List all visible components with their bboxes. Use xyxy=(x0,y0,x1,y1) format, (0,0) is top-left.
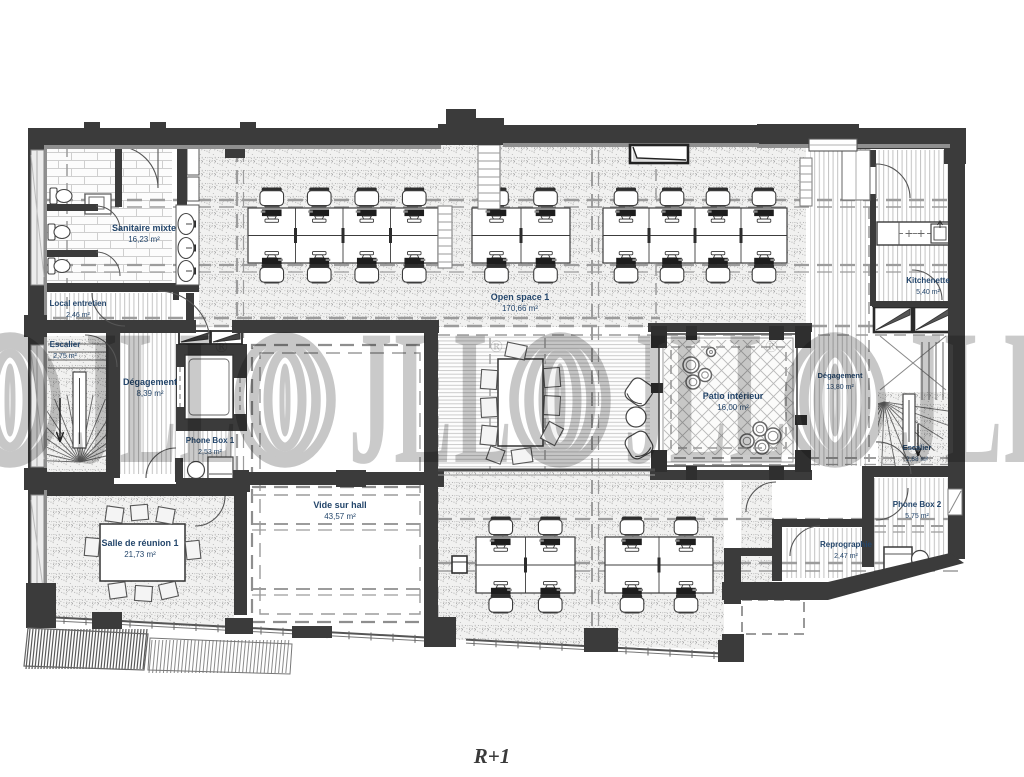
svg-text:5,75 m²: 5,75 m² xyxy=(905,513,929,520)
svg-text:R+1: R+1 xyxy=(473,744,510,768)
svg-text:Sanitaire mixte: Sanitaire mixte xyxy=(112,223,176,233)
svg-text:JLL: JLL xyxy=(349,292,514,505)
svg-text:®: ® xyxy=(765,337,778,356)
svg-text:Reprographie: Reprographie xyxy=(820,540,873,549)
svg-text:21,73 m²: 21,73 m² xyxy=(124,550,156,559)
svg-text:JLL: JLL xyxy=(899,292,1024,505)
svg-text:JLL: JLL xyxy=(624,292,789,505)
svg-text:16,23 m²: 16,23 m² xyxy=(128,235,160,244)
svg-text:2,47 m²: 2,47 m² xyxy=(834,553,858,560)
svg-text:Kitchenette: Kitchenette xyxy=(906,276,950,285)
svg-text:JLL: JLL xyxy=(74,292,239,505)
svg-text:Salle de réunion 1: Salle de réunion 1 xyxy=(101,538,178,548)
svg-text:®: ® xyxy=(490,337,503,356)
svg-text:®: ® xyxy=(215,337,228,356)
svg-text:43,57 m²: 43,57 m² xyxy=(324,512,356,521)
